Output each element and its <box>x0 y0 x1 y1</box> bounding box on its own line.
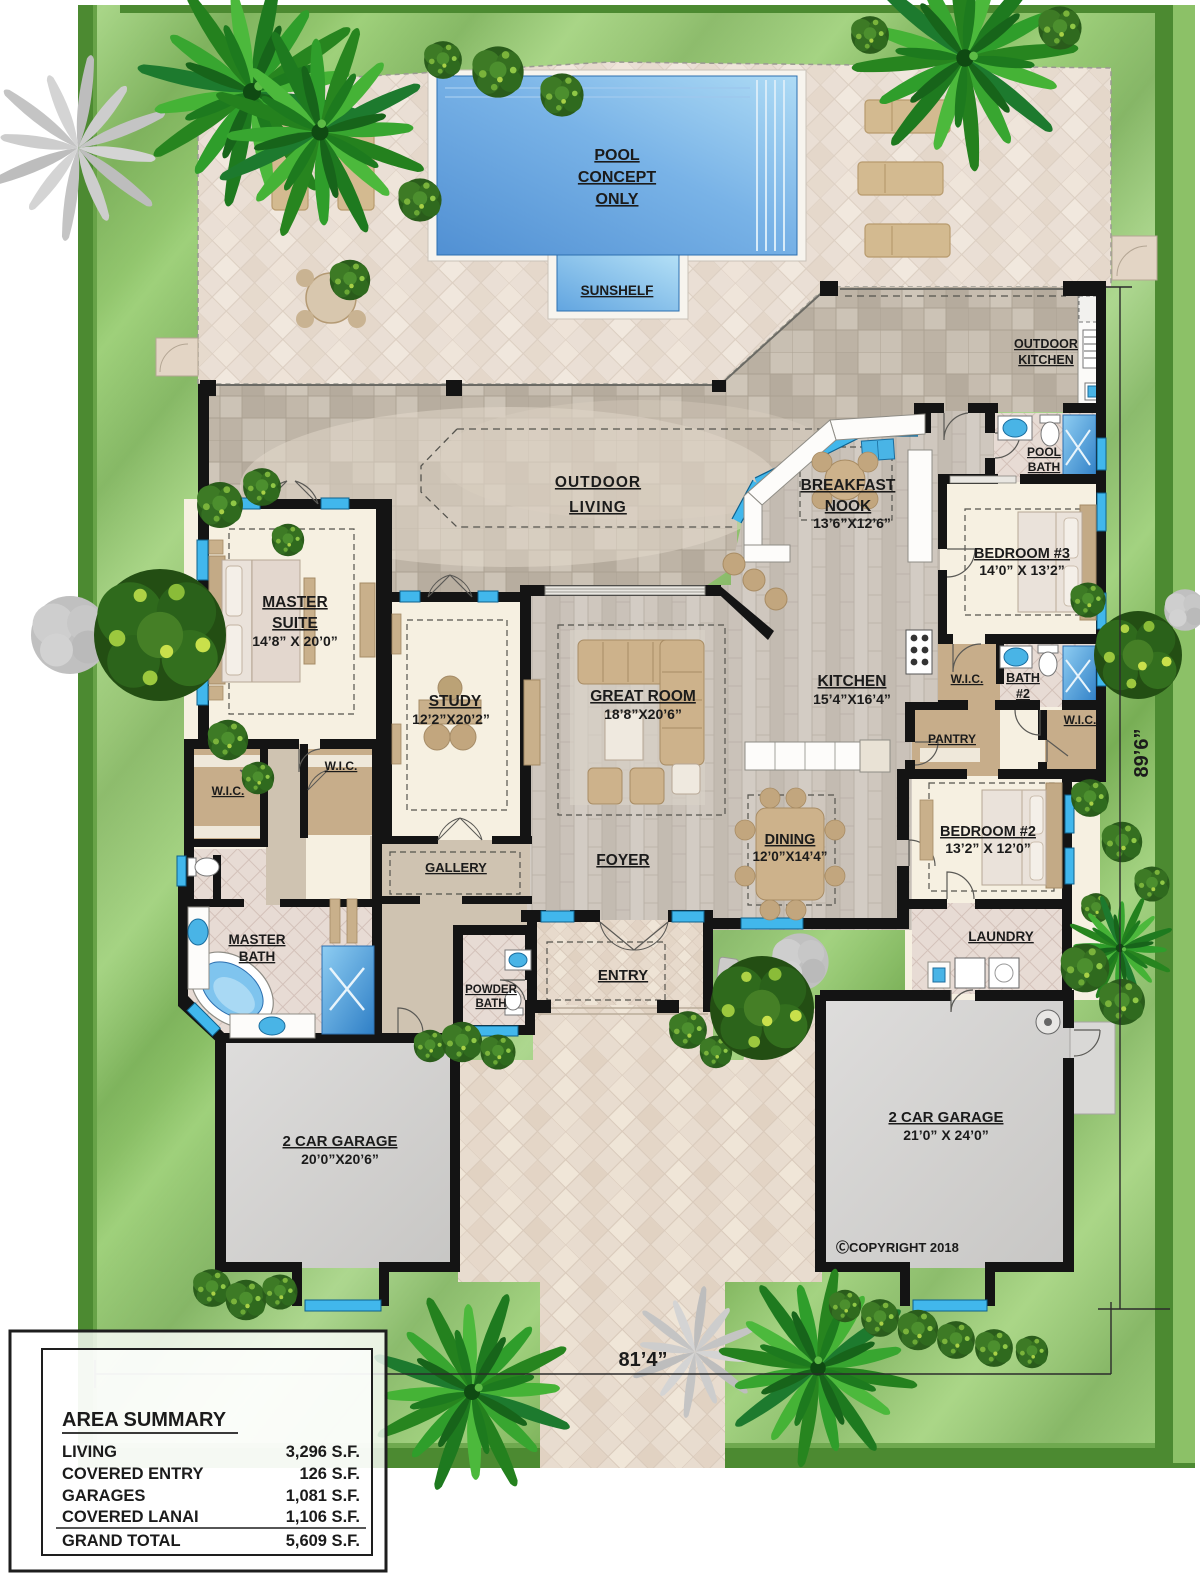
svg-text:BATH: BATH <box>475 998 506 1010</box>
svg-text:2 CAR GARAGE: 2 CAR GARAGE <box>282 1133 397 1150</box>
svg-text:2 CAR GARAGE: 2 CAR GARAGE <box>888 1109 1003 1126</box>
svg-text:13’6”X12’6”: 13’6”X12’6” <box>813 515 891 531</box>
svg-text:STUDY: STUDY <box>429 693 482 710</box>
svg-text:SUNSHELF: SUNSHELF <box>581 283 654 298</box>
svg-text:20’0”X20’6”: 20’0”X20’6” <box>301 1151 379 1167</box>
svg-text:COVERED ENTRY: COVERED ENTRY <box>62 1465 204 1483</box>
svg-text:LAUNDRY: LAUNDRY <box>968 929 1034 944</box>
svg-text:12’2”X20’2”: 12’2”X20’2” <box>412 711 490 727</box>
svg-text:LIVING: LIVING <box>569 499 627 516</box>
svg-text:POOL: POOL <box>594 147 640 164</box>
svg-text:14’0” X 13’2”: 14’0” X 13’2” <box>979 562 1065 578</box>
svg-text:OUTDOOR: OUTDOOR <box>1014 337 1078 351</box>
svg-text:15’4”X16’4”: 15’4”X16’4” <box>813 691 891 707</box>
svg-text:12’0”X14’4”: 12’0”X14’4” <box>752 849 827 864</box>
svg-text:18’8”X20’6”: 18’8”X20’6” <box>604 706 682 722</box>
svg-text:W.I.C.: W.I.C. <box>212 784 245 798</box>
svg-text:81’4”: 81’4” <box>619 1349 668 1371</box>
svg-text:BATH: BATH <box>1006 671 1040 685</box>
svg-text:W.I.C.: W.I.C. <box>1064 713 1097 727</box>
svg-text:KITCHEN: KITCHEN <box>1018 353 1074 367</box>
svg-text:13’2” X 12’0”: 13’2” X 12’0” <box>945 840 1031 856</box>
svg-text:ONLY: ONLY <box>596 191 639 208</box>
svg-text:AREA SUMMARY: AREA SUMMARY <box>62 1409 227 1431</box>
svg-text:NOOK: NOOK <box>825 498 872 515</box>
svg-text:BEDROOM #3: BEDROOM #3 <box>974 546 1070 562</box>
svg-text:W.I.C.: W.I.C. <box>951 672 984 686</box>
svg-text:GARAGES: GARAGES <box>62 1487 145 1505</box>
svg-text:BEDROOM #2: BEDROOM #2 <box>940 824 1036 840</box>
svg-text:126 S.F.: 126 S.F. <box>299 1465 360 1483</box>
svg-text:21’0” X 24’0”: 21’0” X 24’0” <box>903 1127 989 1143</box>
svg-text:POOL: POOL <box>1027 445 1061 459</box>
svg-text:GALLERY: GALLERY <box>425 860 487 875</box>
svg-text:1,106 S.F.: 1,106 S.F. <box>286 1508 360 1526</box>
svg-text:SUITE: SUITE <box>272 615 318 632</box>
svg-text:DINING: DINING <box>765 832 816 848</box>
svg-text:BREAKFAST: BREAKFAST <box>801 477 896 494</box>
svg-text:LIVING: LIVING <box>62 1443 117 1461</box>
svg-text:14’8” X 20’0”: 14’8” X 20’0” <box>252 633 338 649</box>
svg-text:BATH: BATH <box>239 949 276 964</box>
svg-text:MASTER: MASTER <box>229 932 286 947</box>
svg-text:1,081 S.F.: 1,081 S.F. <box>286 1487 360 1505</box>
svg-text:FOYER: FOYER <box>596 852 649 869</box>
svg-text:GRAND TOTAL: GRAND TOTAL <box>62 1532 181 1550</box>
svg-text:5,609 S.F.: 5,609 S.F. <box>286 1532 360 1550</box>
svg-text:#2: #2 <box>1016 687 1030 701</box>
svg-text:MASTER: MASTER <box>262 594 327 611</box>
svg-text:KITCHEN: KITCHEN <box>818 673 887 690</box>
svg-text:89’6”: 89’6” <box>1131 729 1153 778</box>
svg-text:ⒸCOPYRIGHT 2018: ⒸCOPYRIGHT 2018 <box>836 1240 959 1255</box>
svg-text:POWDER: POWDER <box>465 984 517 996</box>
svg-text:BATH: BATH <box>1028 460 1060 474</box>
svg-text:W.I.C.: W.I.C. <box>325 759 358 773</box>
svg-text:OUTDOOR: OUTDOOR <box>555 474 641 491</box>
svg-text:PANTRY: PANTRY <box>928 732 976 746</box>
svg-text:ENTRY: ENTRY <box>598 967 648 984</box>
svg-text:COVERED LANAI: COVERED LANAI <box>62 1508 199 1526</box>
svg-text:3,296 S.F.: 3,296 S.F. <box>286 1443 360 1461</box>
svg-text:CONCEPT: CONCEPT <box>578 169 656 186</box>
svg-text:GREAT ROOM: GREAT ROOM <box>590 688 696 705</box>
